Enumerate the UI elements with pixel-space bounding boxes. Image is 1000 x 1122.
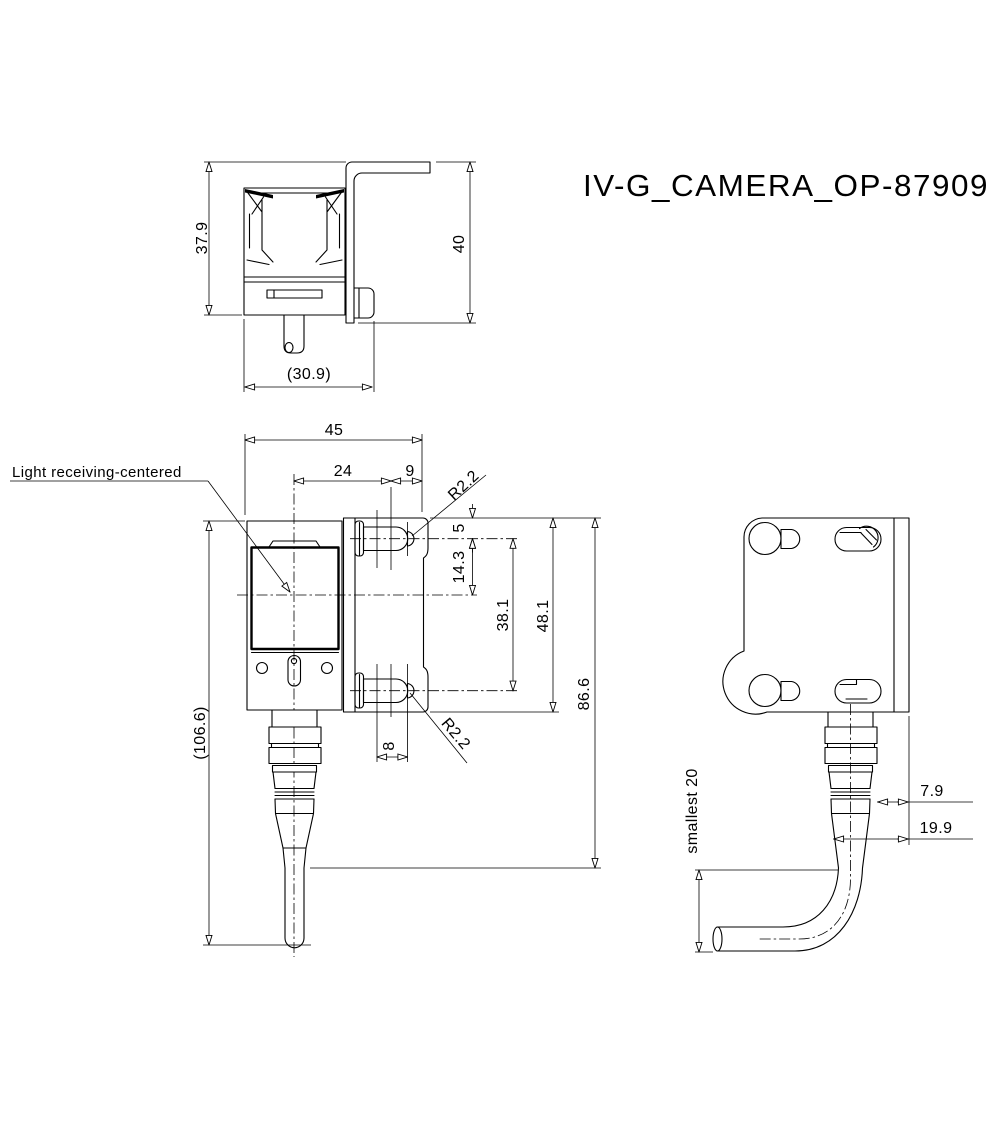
dim-label-screw-to-edge: 9 xyxy=(405,463,414,480)
dim-label-screw-head-width: 8 xyxy=(381,741,398,750)
light-receiving-label: Light receiving-centered xyxy=(12,464,182,481)
dim-label-overall-depth: (30.9) xyxy=(287,366,331,383)
dim-label-plate-to-cable: 19.9 xyxy=(920,820,953,837)
dim-label-bracket-depth: 40 xyxy=(451,235,468,254)
dim-label-body-depth: 37.9 xyxy=(194,222,211,255)
dim-label-bracket-height: 48.1 xyxy=(535,600,552,633)
dim-label-body-to-cable: 86.6 xyxy=(576,678,593,711)
camera-dimension-drawing: IV-G_CAMERA_OP-87909 37.9 xyxy=(0,0,1000,1122)
dim-label-overall-height: (106.6) xyxy=(192,706,209,760)
dim-label-plate-to-connector: 7.9 xyxy=(920,783,943,800)
dim-label-width: 45 xyxy=(325,422,344,439)
dim-label-screw-spacing: 38.1 xyxy=(495,599,512,632)
dim-label-min-bend: smallest 20 xyxy=(684,768,701,853)
technical-drawing-sheet: IV-G_CAMERA_OP-87909 37.9 xyxy=(0,0,1000,1122)
drawing-title: IV-G_CAMERA_OP-87909 xyxy=(583,168,989,203)
dim-label-screw-offset: 5 xyxy=(451,523,468,532)
dim-label-center-to-screw: 24 xyxy=(334,463,353,480)
dim-label-center-offset: 14.3 xyxy=(451,551,468,584)
